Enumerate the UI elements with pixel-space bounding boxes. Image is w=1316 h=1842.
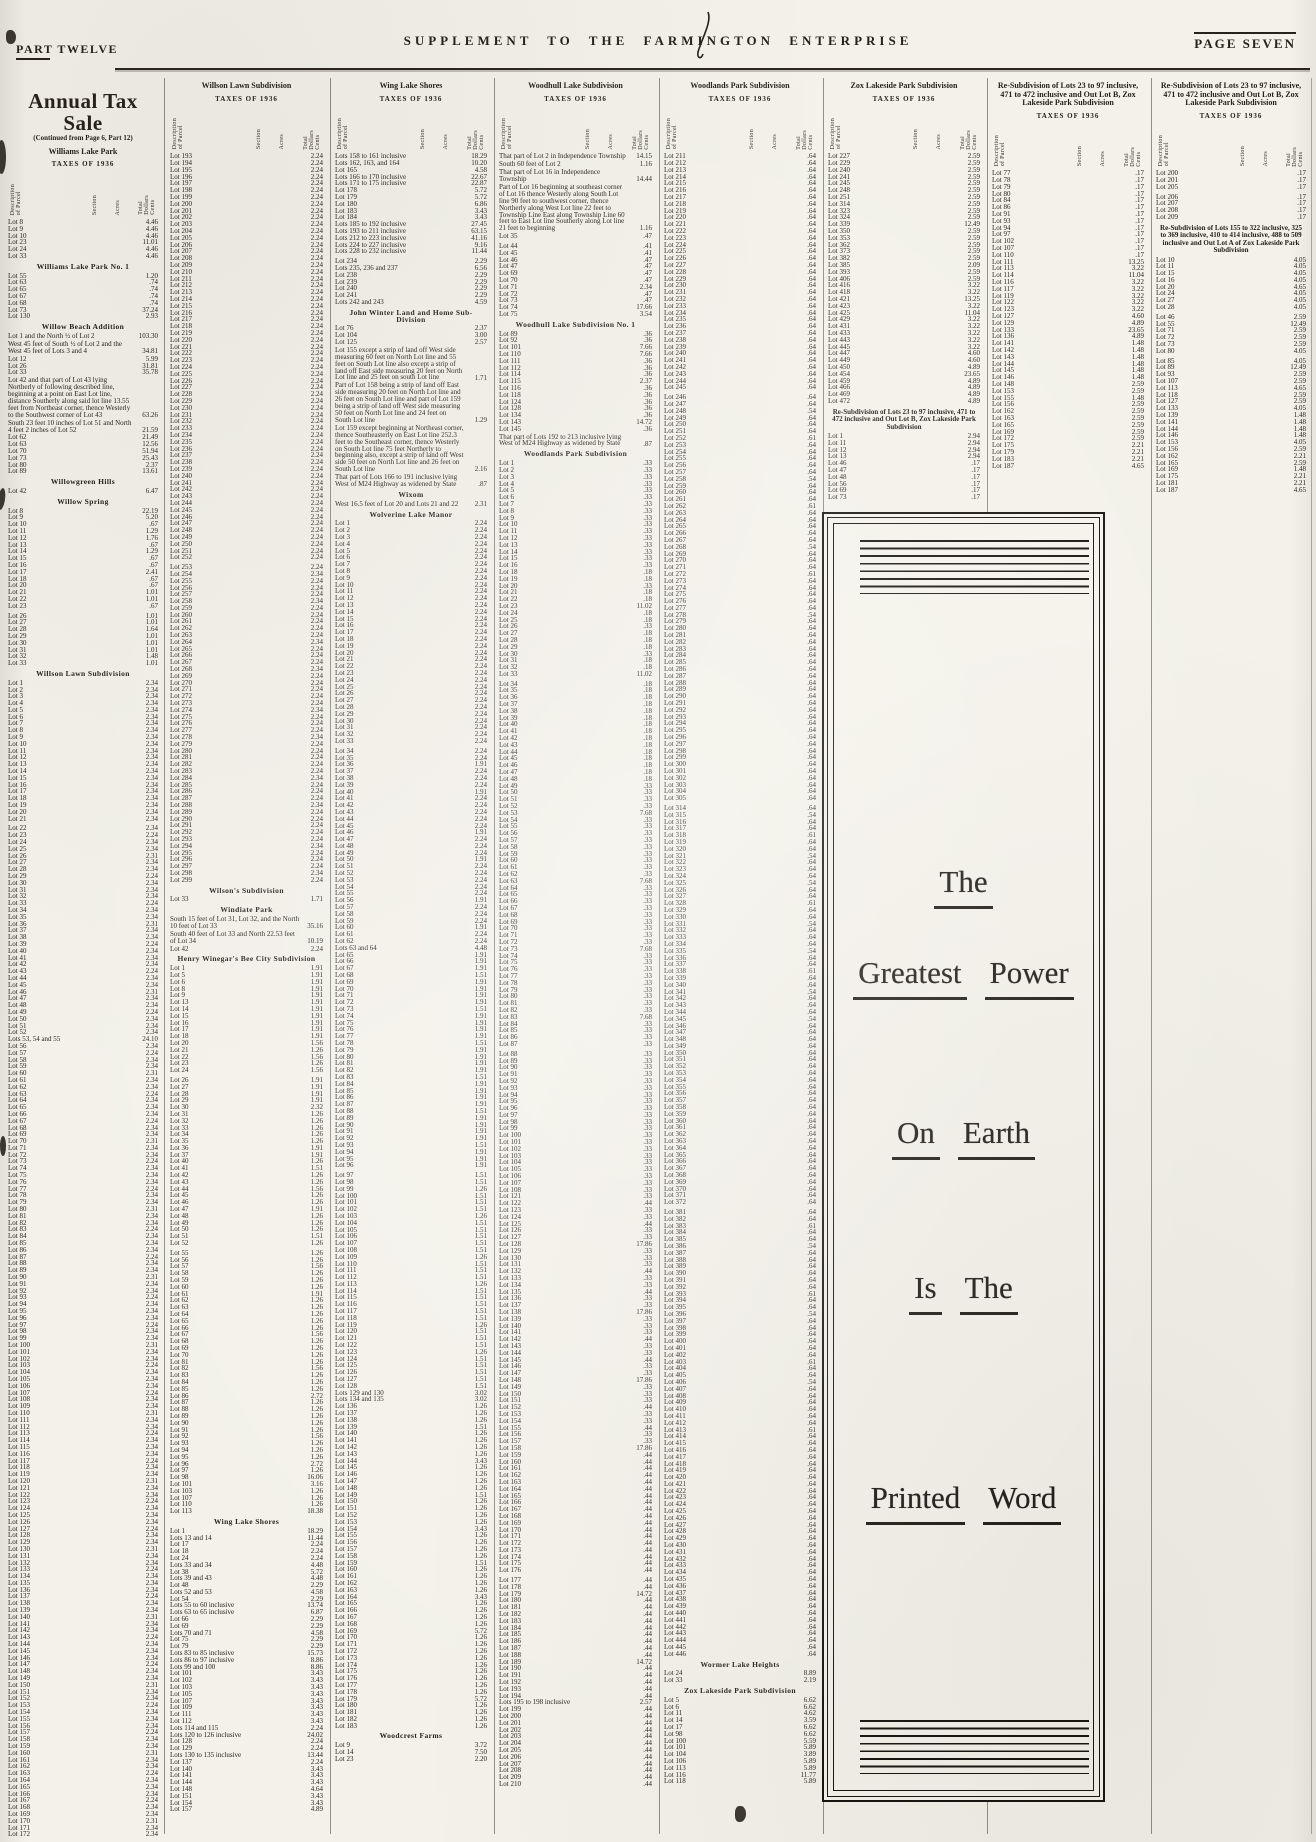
table-row: Lot 931.51 xyxy=(335,1142,487,1149)
table-row: Lot 732.24 xyxy=(8,1158,158,1165)
table-row: Lot 226.64 xyxy=(664,255,816,262)
table-row: Lot 202.34 xyxy=(8,809,158,816)
table-row: Lot 1271.51 xyxy=(335,1376,487,1383)
table-row: Lot 362.31 xyxy=(8,921,158,928)
table-row: Lot 397.64 xyxy=(664,1318,816,1325)
table-row: Lot 1662.34 xyxy=(8,1791,158,1798)
table-row: Lot 522.24 xyxy=(335,870,487,877)
table-row: Lot 337.64 xyxy=(664,961,816,968)
table-row: Lot 80.17 xyxy=(992,191,1144,198)
subdivision-heading: Woodhull Lake Subdivision No. 1 xyxy=(499,322,652,329)
parcel-description: Lot 24 xyxy=(170,1067,191,1074)
table-row: Lot 951.26 xyxy=(170,1454,323,1461)
table-row: Lot 56.62 xyxy=(664,1697,816,1704)
table-row: Lot 93.72 xyxy=(335,1742,487,1749)
table-row: Lot 357.64 xyxy=(664,1097,816,1104)
table-row: Lot 1551.48 xyxy=(992,395,1144,402)
table-row: Lot 2132.24 xyxy=(170,289,323,296)
subdivision-heading: Zox Lakeside Park Subdivision xyxy=(664,1688,816,1695)
table-row: Lot 1562.59 xyxy=(992,401,1144,408)
table-row: Lot 781.51 xyxy=(335,1040,487,1047)
table-row: Lot 61.91 xyxy=(170,979,323,986)
ad-hatch-top xyxy=(860,540,1089,594)
table-row: Lot 104.46 xyxy=(8,233,158,240)
amount-cell: 2.34 xyxy=(138,1831,158,1836)
table-row: Lot 155.44 xyxy=(499,1425,652,1432)
table-row: Lot 428.64 xyxy=(664,1528,816,1535)
table-row: Lot 290.64 xyxy=(664,693,816,700)
table-row: Lot 206.17 xyxy=(1156,194,1306,201)
table-row: Lot 62.24 xyxy=(335,554,487,561)
table-row: Lot 222.24 xyxy=(335,663,487,670)
table-row: Lot 1761.26 xyxy=(335,1675,487,1682)
table-row: Lot 287.64 xyxy=(664,673,816,680)
table-row: Lot 67.33 xyxy=(499,905,652,912)
table-row: Lot 1391.48 xyxy=(1156,412,1306,419)
table-row: Lot 332.19 xyxy=(664,1677,816,1684)
table-row: Lot 434.64 xyxy=(664,1569,816,1576)
subdivision-heading: Willow Beach Addition xyxy=(8,324,158,331)
amount-cell: 5.89 xyxy=(796,1778,816,1785)
ad-word: Word xyxy=(983,1482,1061,1525)
table-row: Lot 661.26 xyxy=(170,1325,323,1332)
table-row: Lot 231.26 xyxy=(170,1060,323,1067)
rotated-header: Total Dollars Cents xyxy=(1124,147,1142,167)
table-row: Lots 162, 163, and 16410.20 xyxy=(335,160,487,167)
parcel-description: Lot 176 xyxy=(499,1567,524,1574)
table-row: Lot 208.44 xyxy=(499,1767,652,1774)
table-row: Lot 370.64 xyxy=(664,1186,816,1193)
table-row: Lot 75.33 xyxy=(499,959,652,966)
table-row: Lot 1522.34 xyxy=(8,1695,158,1702)
table-row: Lot 352.24 xyxy=(335,755,487,762)
table-row: Lot 662.34 xyxy=(8,1111,158,1118)
table-row: Lot 1442.34 xyxy=(8,1641,158,1648)
table-row: Lot 225.64 xyxy=(664,248,816,255)
table-row: Lot 162.34 xyxy=(8,782,158,789)
table-row: Lot 621.26 xyxy=(170,1297,323,1304)
table-row: Lot 831.51 xyxy=(335,1074,487,1081)
table-row: Lot 132.34 xyxy=(8,761,158,768)
table-row: Lot 316.64 xyxy=(664,819,816,826)
table-row: Lot 1622.21 xyxy=(1156,453,1306,460)
table-row: Lot 881.51 xyxy=(335,1108,487,1115)
table-row: Lot 2732.24 xyxy=(170,700,323,707)
scan-smudge xyxy=(6,30,16,44)
parcel-description: Lot 33 xyxy=(170,896,191,903)
table-row: Lot 45.18 xyxy=(499,755,652,762)
column-rule xyxy=(1151,78,1152,1834)
pen-mark xyxy=(688,8,718,64)
table-row: Lot 921.56 xyxy=(170,1433,323,1440)
parcel-description: Lot 155 except a strip of land off West … xyxy=(335,347,467,382)
table-row: Lot 201.56 xyxy=(170,1040,323,1047)
table-row: Lot 822.19 xyxy=(8,508,158,515)
table-row: Lots 99 and 1008.86 xyxy=(170,1664,323,1671)
table-row: Lot 44.41 xyxy=(499,243,652,250)
table-row: Lot 92.34 xyxy=(8,734,158,741)
table-row: Lot 1252.34 xyxy=(8,1512,158,1519)
table-row: Lot 371.64 xyxy=(664,1192,816,1199)
table-row: Lot 91.91 xyxy=(170,992,323,999)
table-row: Lot 219.64 xyxy=(664,208,816,215)
amount-cell: 10.19 xyxy=(303,938,323,945)
table-row: Lot 232.24 xyxy=(335,670,487,677)
table-row: Lot 5.33 xyxy=(499,487,652,494)
table-row: Lot 842.34 xyxy=(8,1233,158,1240)
table-row: Lot 2902.24 xyxy=(170,816,323,823)
table-row: Lot 1134.65 xyxy=(1156,385,1306,392)
table-row: Lot 359.64 xyxy=(664,1111,816,1118)
table-row: Lot 1431.26 xyxy=(335,1451,487,1458)
table-row: Lot 3142.59 xyxy=(828,201,980,208)
table-row: Lot 240.64 xyxy=(664,350,816,357)
table-row: Lot 304.64 xyxy=(664,788,816,795)
table-row: Lot 136.33 xyxy=(499,1295,652,1302)
parcel-description: Lot 28 xyxy=(1156,304,1177,311)
rotated-header: Section xyxy=(1077,146,1083,166)
table-row: Lot 4664.89 xyxy=(828,384,980,391)
table-row: Lot 1412.34 xyxy=(8,1621,158,1628)
table-row: Lot 6221.49 xyxy=(8,434,158,441)
table-row: Lot 272.24 xyxy=(335,697,487,704)
table-row: Lot 147.33 xyxy=(499,1370,652,1377)
table-row: Lot 160.44 xyxy=(499,1459,652,1466)
table-row: Lot 4594.89 xyxy=(828,378,980,385)
table-row: Lot 122.94 xyxy=(828,447,980,454)
table-row: Lot 50.33 xyxy=(499,789,652,796)
column-subheaders: Description of ParcelSectionAcresTotal D… xyxy=(335,102,487,150)
table-row: Lot 2632.24 xyxy=(170,632,323,639)
table-row: Lot 1512.34 xyxy=(8,1689,158,1696)
table-row: Lot 1543.43 xyxy=(170,1800,323,1807)
table-row: Lot 331.01 xyxy=(8,660,158,667)
parcel-description: Lot 245 xyxy=(664,384,689,391)
table-row: Lot 1811.26 xyxy=(335,1709,487,1716)
table-row: Lot 263.64 xyxy=(664,510,816,517)
table-row: Lot 65.33 xyxy=(499,891,652,898)
table-row: Lot 1612.34 xyxy=(8,1757,158,1764)
table-row: Lot 273.64 xyxy=(664,578,816,585)
table-row: Lot 1421.26 xyxy=(335,1444,487,1451)
table-row: Lot 2052.24 xyxy=(170,235,323,242)
table-row: Lot 222.34 xyxy=(8,825,158,832)
table-row: Lot 294.64 xyxy=(664,720,816,727)
table-row: Lot 416.64 xyxy=(664,1447,816,1454)
table-row: Lot 2752.24 xyxy=(170,714,323,721)
table-row: Lot 211.64 xyxy=(664,153,816,160)
table-row: Lot 147.50 xyxy=(335,1749,487,1756)
table-row: Lot 2062.24 xyxy=(170,242,323,249)
table-row: Lot 732.59 xyxy=(1156,341,1306,348)
table-row: Lot 336.64 xyxy=(664,955,816,962)
table-row: Lot 172.34 xyxy=(8,788,158,795)
table-row: Lot 881.26 xyxy=(170,1406,323,1413)
table-row: Lot 1552.34 xyxy=(8,1716,158,1723)
amount-cell: 2.24 xyxy=(467,738,487,745)
table-row: Lot 462.31 xyxy=(8,989,158,996)
table-row: Lot 361.64 xyxy=(664,1124,816,1131)
table-row: Lot 592.34 xyxy=(8,1063,158,1070)
table-row: Lot 371.91 xyxy=(170,1152,323,1159)
amount-cell: .87 xyxy=(632,441,652,448)
table-row: Lot 1795.72 xyxy=(335,1696,487,1703)
table-row: Lot 25.18 xyxy=(499,617,652,624)
parcel-description: Lot 187 xyxy=(1156,487,1181,494)
table-row: Lot 42 and that part of Lot 43 lying Nor… xyxy=(8,377,158,418)
table-row: Lot 107.17 xyxy=(992,245,1144,252)
amount-cell: 1.16 xyxy=(632,225,652,232)
parcel-description: Lot 42 xyxy=(8,488,29,495)
table-row: Lot 1632.24 xyxy=(8,1770,158,1777)
amount-cell: 18.38 xyxy=(303,1508,323,1515)
amount-cell: .17 xyxy=(1286,214,1306,221)
table-row: Lot 44.18 xyxy=(499,749,652,756)
table-row: Lot 1534.05 xyxy=(1156,439,1306,446)
table-row: Lots 171 to 175 inclusive22.87 xyxy=(335,180,487,187)
table-row: Lot 125.44 xyxy=(499,1221,652,1228)
scan-smudge xyxy=(0,488,6,511)
table-row: Lot 1701.26 xyxy=(335,1634,487,1641)
table-row: Lot 77.33 xyxy=(499,973,652,980)
table-row: Lot 441.64 xyxy=(664,1617,816,1624)
table-row: Lot 85.33 xyxy=(499,1027,652,1034)
subdivision-name: Willson Lawn Subdivision xyxy=(170,82,323,91)
table-row: Lot 102.17 xyxy=(992,238,1144,245)
table-row: Lot 284.05 xyxy=(1156,304,1306,311)
table-row: Lot 1452.34 xyxy=(8,1648,158,1655)
table-row: Lot 413.61 xyxy=(664,1427,816,1434)
amount-cell: 1.26 xyxy=(467,1723,487,1730)
table-row: Lot 35.18 xyxy=(499,687,652,694)
table-row: Lot 1101.51 xyxy=(335,1261,487,1268)
table-row: Lot 981.51 xyxy=(335,1179,487,1186)
table-row: Lot 12.33 xyxy=(499,535,652,542)
table-row: Lot 301.64 xyxy=(664,768,816,775)
table-row: Lot 269.64 xyxy=(664,551,816,558)
table-row: Lot 43.18 xyxy=(499,742,652,749)
table-row: Lot 66.33 xyxy=(499,898,652,905)
parcel-description: Part of Lot 158 being a strip of land of… xyxy=(335,382,467,423)
table-row: Lot 832.24 xyxy=(8,1226,158,1233)
table-row: Lot 431.26 xyxy=(170,1179,323,1186)
table-row: Lots 235, 236 and 2376.56 xyxy=(335,265,487,272)
table-row: Lot 1232.24 xyxy=(8,1498,158,1505)
table-row: Lot 432.64 xyxy=(664,1556,816,1563)
table-row: Lot 2022.24 xyxy=(170,214,323,221)
table-row: Lot 172.44 xyxy=(499,1540,652,1547)
table-row: Lot 98.33 xyxy=(499,1119,652,1126)
table-row: Lot 1421.48 xyxy=(992,347,1144,354)
table-row: Lot 2642.34 xyxy=(170,639,323,646)
table-row: Lot 3852.09 xyxy=(828,262,980,269)
table-row: Lot 951.91 xyxy=(335,1156,487,1163)
table-row: Lot 2802.24 xyxy=(170,748,323,755)
table-row: Lot 472.24 xyxy=(335,836,487,843)
table-row: Lot 1113.43 xyxy=(170,1711,323,1718)
table-row: Lot 395.64 xyxy=(664,1304,816,1311)
rotated-header: Acres xyxy=(1263,151,1269,167)
table-row: Lot 2382.29 xyxy=(335,272,487,279)
table-row: Lot 1231.26 xyxy=(335,1349,487,1356)
table-row: Lot 1962.24 xyxy=(170,174,323,181)
amount-cell: 2.34 xyxy=(138,816,158,823)
table-row: Lot 151.91 xyxy=(170,1013,323,1020)
table-row: Lot 99.33 xyxy=(499,1125,652,1132)
table-row: Lot 163.44 xyxy=(499,1479,652,1486)
table-row: Lot 257.64 xyxy=(664,469,816,476)
table-row: Lot 39.18 xyxy=(499,715,652,722)
table-row: Lot 1071.51 xyxy=(335,1240,487,1247)
table-row: Lot 1752.21 xyxy=(1156,473,1306,480)
table-row: Lot 1501.26 xyxy=(335,1498,487,1505)
table-row: Lot 168.44 xyxy=(499,1513,652,1520)
table-row: Lot 88.33 xyxy=(499,1051,652,1058)
table-row: Lot 1294.89 xyxy=(992,320,1144,327)
table-row: Lot 1065.89 xyxy=(664,1758,816,1765)
table-row: Lot 70.47 xyxy=(499,277,652,284)
table-row: Lot 364.64 xyxy=(664,1145,816,1152)
table-row: Part of Lot 16 beginning at southeast co… xyxy=(499,184,652,232)
table-row: Lot 1071.26 xyxy=(170,1495,323,1502)
parcel-description: Lot 118 xyxy=(664,1778,689,1785)
table-row: Lot 1081.51 xyxy=(335,1247,487,1254)
table-row: Lot 942.34 xyxy=(8,1301,158,1308)
table-row: Lot 2292.59 xyxy=(828,160,980,167)
table-row: Lot 331.71 xyxy=(170,896,323,903)
table-row: Lot 412.24 xyxy=(335,795,487,802)
table-row: Lot 471.91 xyxy=(170,1206,323,1213)
table-row: Lot 1785.72 xyxy=(335,187,487,194)
table-row: Lot 95.20 xyxy=(8,514,158,521)
table-row: Lot 1833.43 xyxy=(335,208,487,215)
table-row: Lot 1482.59 xyxy=(992,381,1144,388)
table-row: Lot 142.34 xyxy=(8,768,158,775)
table-row: Lot 159.44 xyxy=(499,1452,652,1459)
subdivision-heading: Windiate Park xyxy=(170,907,323,914)
table-row: Lot 91.17 xyxy=(992,211,1144,218)
table-row: Lot 48.18 xyxy=(499,776,652,783)
table-row: Lot 302.32 xyxy=(170,1104,323,1111)
table-row: Lot 3732.59 xyxy=(828,248,980,255)
table-row: Lot 72.47 xyxy=(499,291,652,298)
table-row: Lot 1942.24 xyxy=(170,160,323,167)
table-row: Lot 1013.43 xyxy=(170,1670,323,1677)
table-row: Lot 190.44 xyxy=(499,1665,652,1672)
subdivision-heading: Woodlands Park Subdivision xyxy=(499,451,652,458)
table-row: Lot 385.64 xyxy=(664,1236,816,1243)
rotated-header: Description of Parcel xyxy=(830,118,842,149)
table-row: Lot 2652.24 xyxy=(170,646,323,653)
table-row: Lot 4.33 xyxy=(499,481,652,488)
table-row: Lot 342.64 xyxy=(664,995,816,1002)
parcel-description: Lot 33 xyxy=(8,369,29,376)
table-row: Lot 282.64 xyxy=(664,639,816,646)
amount-cell: .87 xyxy=(467,481,487,488)
table-row: Lot 952.34 xyxy=(8,1308,158,1315)
table-row: Lot 3242.59 xyxy=(828,214,980,221)
parcel-description: Lot 33 xyxy=(8,253,29,260)
table-row: That part of Lot 2 in Independence Towns… xyxy=(499,153,652,160)
table-row: Lot 2262.24 xyxy=(170,378,323,385)
table-row: Lot 662.29 xyxy=(170,1616,323,1623)
amount-cell: .64 xyxy=(796,1199,816,1206)
table-row: Lot 266.64 xyxy=(664,530,816,537)
table-row: Lot 721.91 xyxy=(335,999,487,1006)
table-row: Lot 303.64 xyxy=(664,782,816,789)
table-row: Lot 1371.26 xyxy=(335,1410,487,1417)
table-row: Lot 1022.34 xyxy=(8,1356,158,1363)
table-row: Lot 33912.49 xyxy=(828,221,980,228)
table-row: Lot 581.26 xyxy=(170,1270,323,1277)
table-row: Lot 203.44 xyxy=(499,1733,652,1740)
table-row: Lot 2012.24 xyxy=(170,208,323,215)
table-row: Lot 3532.59 xyxy=(828,235,980,242)
table-row: Lot 451.26 xyxy=(170,1192,323,1199)
table-row: Lot 452.34 xyxy=(8,982,158,989)
table-row: Lot 4293.22 xyxy=(828,316,980,323)
table-row: Lot 323.64 xyxy=(664,866,816,873)
table-row: Lot 4474.60 xyxy=(828,350,980,357)
table-row: Lot 552.24 xyxy=(335,890,487,897)
rotated-header: Section xyxy=(420,129,426,149)
continued-note: (Continued from Page 6, Part 12) xyxy=(8,135,158,142)
parcel-description: Lot 159 except beginning at Northeast co… xyxy=(335,425,467,473)
table-row: Lot 372.24 xyxy=(335,768,487,775)
table-row: Lot 1431.48 xyxy=(992,354,1144,361)
table-row: Lot 2532.24 xyxy=(170,564,323,571)
table-row: Lot 1043.00 xyxy=(335,332,487,339)
table-row: Lot 502.34 xyxy=(8,1016,158,1023)
table-row: Lot 254.64 xyxy=(664,449,816,456)
table-row: Lot 59.33 xyxy=(499,851,652,858)
table-row: Lot 1043.89 xyxy=(664,1751,816,1758)
table-row: Lot 171.91 xyxy=(170,1026,323,1033)
table-row: Lot 1091.26 xyxy=(335,1254,487,1261)
table-row: Lot 333.64 xyxy=(664,934,816,941)
ad-hatch-bottom xyxy=(860,1720,1089,1774)
table-row: Lot 68.74 xyxy=(8,300,158,307)
amount-cell: 103.30 xyxy=(138,333,158,340)
table-row: Lot 561.26 xyxy=(170,1257,323,1264)
table-row: Lot 2402.24 xyxy=(170,473,323,480)
parcel-description: Lot 96 xyxy=(335,1162,356,1169)
table-row: Lot 922.34 xyxy=(8,1288,158,1295)
table-row: Lot 291.91 xyxy=(170,1097,323,1104)
amount-cell: 4.65 xyxy=(1286,487,1306,494)
scan-smudge xyxy=(0,140,6,174)
table-row: Lot 762.34 xyxy=(8,1179,158,1186)
table-row: Lot 921.91 xyxy=(335,1135,487,1142)
table-row: Lot 1017.66 xyxy=(499,344,652,351)
table-row: Lot 482.34 xyxy=(8,1002,158,1009)
table-row: Lot 2612.24 xyxy=(170,618,323,625)
table-row: Lot 2582.34 xyxy=(170,598,323,605)
table-row: Lot 433.64 xyxy=(664,1562,816,1569)
table-row: Lot 11411.04 xyxy=(992,272,1144,279)
table-row: Lot 1413.43 xyxy=(170,1772,323,1779)
table-row: Lot 97.17 xyxy=(992,231,1144,238)
table-row: Lot 417.64 xyxy=(664,1454,816,1461)
table-row: Lot 193.44 xyxy=(499,1686,652,1693)
table-row: Lot 741.91 xyxy=(335,1013,487,1020)
table-row: Lot 2512.24 xyxy=(170,548,323,555)
table-row: Lot 427.64 xyxy=(664,1522,816,1529)
table-row: Lot 862.72 xyxy=(170,1393,323,1400)
table-row: Lot 32.34 xyxy=(8,693,158,700)
rotated-header: Total Dollars Cents xyxy=(1286,147,1304,167)
table-row: Lot 251.64 xyxy=(664,428,816,435)
